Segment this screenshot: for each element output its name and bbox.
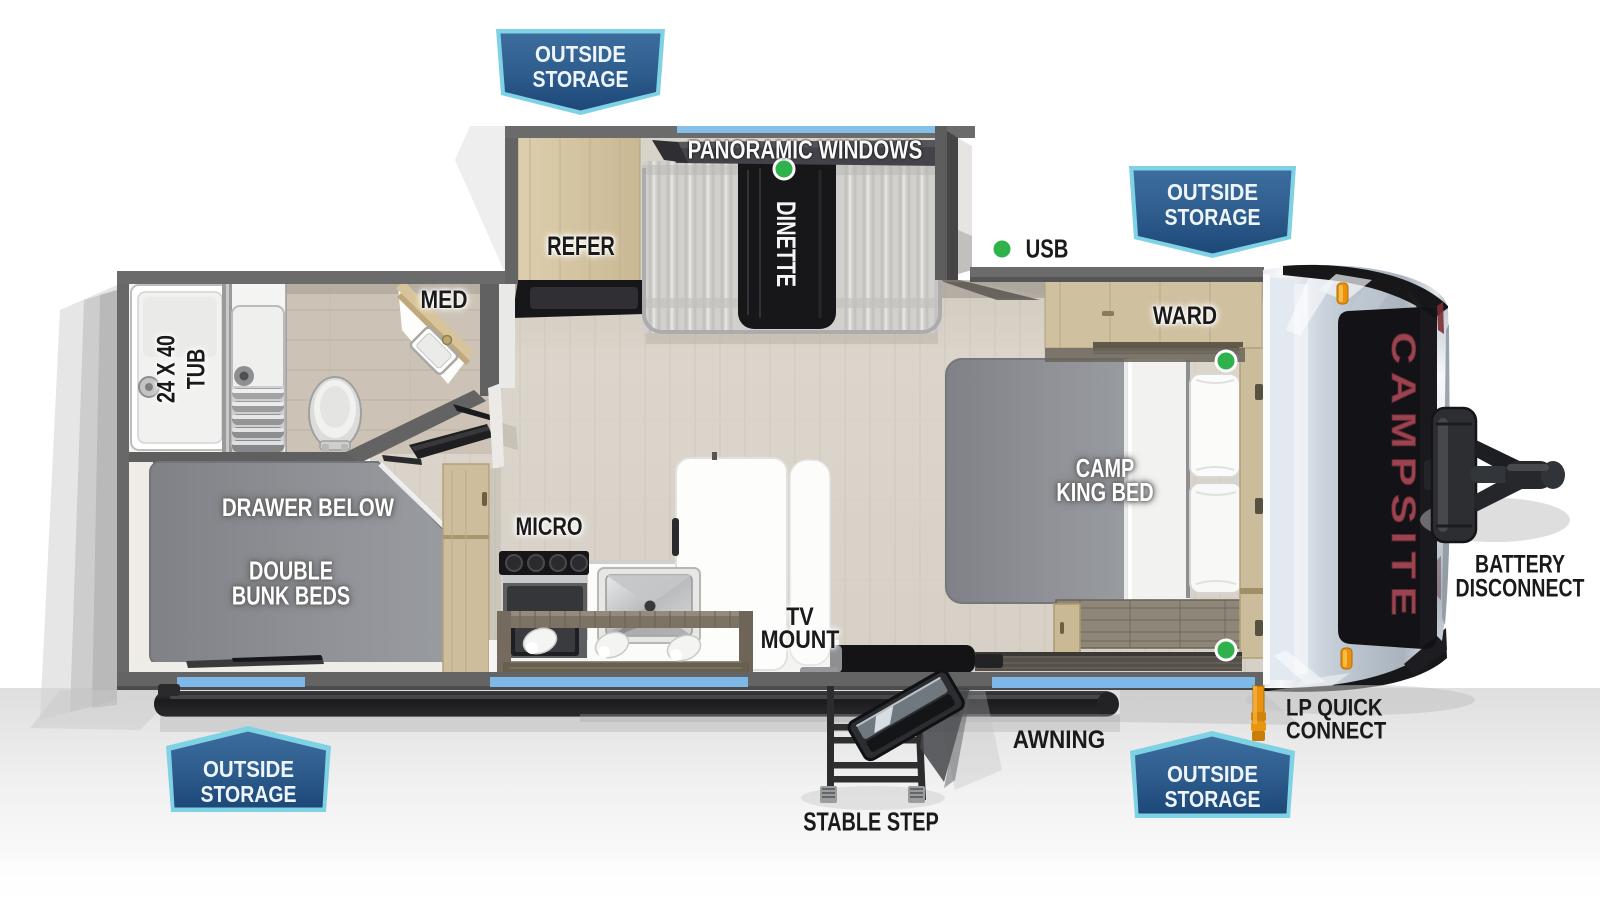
svg-text:OUTSIDE: OUTSIDE [1167, 179, 1258, 205]
svg-text:STORAGE: STORAGE [533, 66, 629, 92]
svg-text:STORAGE: STORAGE [1165, 204, 1261, 230]
svg-text:OUTSIDE: OUTSIDE [1167, 761, 1258, 787]
svg-text:CAMPSITE: CAMPSITE [1384, 332, 1422, 624]
svg-text:OUTSIDE: OUTSIDE [203, 756, 294, 782]
svg-text:STORAGE: STORAGE [1165, 786, 1261, 812]
svg-text:OUTSIDE: OUTSIDE [535, 41, 626, 67]
svg-text:STORAGE: STORAGE [201, 781, 297, 807]
